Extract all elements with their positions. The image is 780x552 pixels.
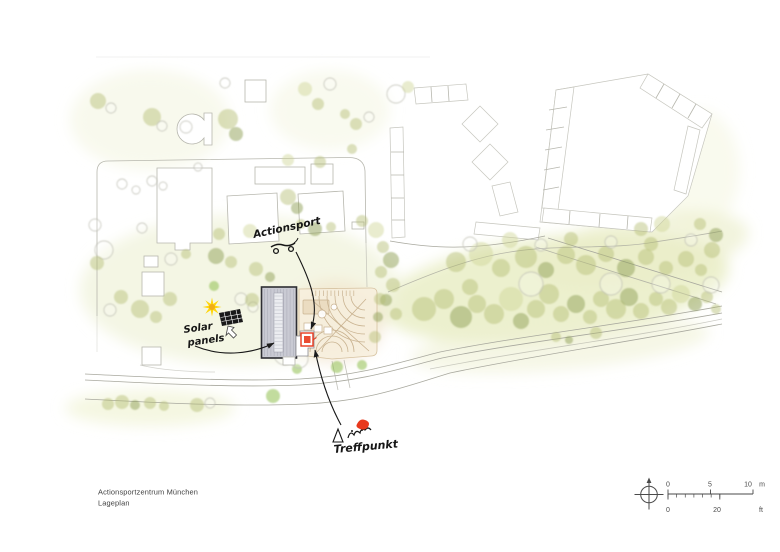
tree	[434, 289, 454, 309]
tree	[688, 297, 702, 311]
annotation-treffpunkt: Treffpunkt	[333, 437, 399, 456]
tree	[280, 189, 296, 205]
tree	[90, 256, 104, 270]
tree	[463, 237, 477, 251]
north-arrow-icon	[635, 478, 664, 510]
tree	[695, 264, 707, 276]
tree	[654, 216, 670, 232]
tree	[564, 232, 578, 246]
tree	[117, 179, 127, 189]
tree	[551, 332, 561, 342]
tree	[565, 336, 573, 344]
title-block: Actionsportzentrum München Lageplan	[98, 488, 198, 508]
tree	[484, 304, 504, 324]
tree	[659, 261, 673, 275]
tree	[163, 292, 177, 306]
scale-ft-unit: ft	[759, 507, 763, 514]
tree	[375, 266, 387, 278]
scale-m-5: 5	[708, 482, 712, 489]
tree	[90, 93, 106, 109]
tree	[557, 246, 575, 264]
building-outline	[144, 256, 158, 267]
tree	[620, 288, 638, 306]
tree	[538, 262, 554, 278]
tree	[356, 215, 368, 227]
tree	[711, 304, 721, 314]
tree	[324, 78, 336, 90]
tree	[249, 262, 263, 276]
tree	[685, 234, 697, 246]
urban-block-west	[390, 84, 540, 240]
tree	[386, 278, 400, 292]
tree	[515, 246, 537, 268]
tree	[144, 397, 156, 409]
tree	[357, 360, 367, 370]
tree	[131, 300, 149, 318]
tree	[576, 255, 596, 275]
tree	[703, 277, 719, 293]
tree	[225, 256, 237, 268]
tree	[513, 313, 529, 329]
tree	[147, 176, 157, 186]
skylight-strip	[274, 293, 283, 352]
tree	[347, 144, 357, 154]
tree	[104, 304, 116, 316]
tree	[213, 228, 225, 240]
tree	[704, 242, 720, 258]
scale-m-unit: m	[759, 482, 765, 489]
tree	[638, 249, 654, 265]
building-outline	[142, 347, 161, 365]
tree	[165, 253, 177, 265]
tree	[652, 275, 670, 293]
tree	[266, 389, 280, 403]
tree	[412, 297, 436, 321]
building-outline	[245, 80, 266, 102]
tree	[208, 248, 224, 264]
tree	[137, 223, 147, 233]
tree	[462, 279, 478, 295]
tree	[694, 218, 706, 230]
tree	[502, 232, 518, 248]
tree	[383, 252, 399, 268]
tree	[181, 249, 191, 259]
tree	[265, 272, 275, 282]
scale-bar: 0 5 10 m 0 20 ft	[666, 482, 765, 515]
tree	[291, 202, 303, 214]
tree	[312, 98, 324, 110]
tree	[678, 251, 694, 267]
tree	[633, 303, 649, 319]
tree	[218, 109, 238, 129]
tree	[590, 327, 602, 339]
tree	[150, 311, 162, 323]
project-title: Actionsportzentrum München	[98, 488, 198, 497]
tree	[373, 312, 383, 322]
site-plan-drawing: Actionsport Solar panels Treffpunkt Ac	[0, 0, 780, 552]
tree	[282, 154, 294, 166]
tree	[132, 186, 140, 194]
tree	[369, 331, 381, 343]
tree	[553, 306, 569, 322]
tree	[402, 81, 414, 93]
tree	[245, 293, 259, 307]
tree	[446, 252, 466, 272]
tree	[331, 361, 343, 373]
tree	[298, 82, 312, 96]
tree	[377, 241, 389, 253]
tree	[450, 306, 472, 328]
tree	[180, 121, 192, 133]
tree	[374, 293, 386, 305]
tree	[390, 308, 402, 320]
tree	[519, 272, 543, 296]
tree	[672, 285, 690, 303]
scale-m-0: 0	[666, 482, 670, 489]
building-outline	[142, 272, 164, 296]
tree	[492, 259, 510, 277]
tree	[364, 112, 374, 122]
tree	[115, 395, 129, 409]
building-outline	[255, 167, 305, 184]
tree	[583, 310, 597, 324]
tree	[567, 295, 585, 313]
tree	[468, 295, 486, 313]
tree	[89, 219, 101, 231]
building-outline	[157, 168, 212, 250]
tree	[209, 281, 219, 291]
scale-m-10: 10	[744, 482, 752, 489]
tree	[644, 237, 658, 251]
tree	[368, 222, 384, 238]
tree	[661, 299, 677, 315]
scale-ft-0: 0	[666, 507, 670, 514]
tree	[340, 109, 350, 119]
tree	[314, 156, 326, 168]
tree	[709, 228, 723, 242]
tree	[157, 121, 167, 131]
tree	[102, 398, 114, 410]
tree	[326, 222, 336, 232]
tree	[159, 401, 169, 411]
tree	[190, 398, 204, 412]
tree	[114, 290, 128, 304]
tree	[205, 398, 215, 408]
tree	[535, 239, 547, 251]
tree	[499, 287, 523, 311]
tree	[194, 163, 202, 171]
tree	[106, 103, 116, 113]
tree	[220, 78, 230, 88]
drawing-title: Lageplan	[98, 499, 130, 508]
tree	[159, 182, 167, 190]
scale-ft-20: 20	[713, 507, 721, 514]
sun-sketch-icon	[203, 298, 222, 317]
tree	[634, 222, 648, 236]
tree	[617, 259, 635, 277]
tree	[130, 400, 140, 410]
tree	[527, 300, 545, 318]
site-plan-sheet: Actionsport Solar panels Treffpunkt Ac	[0, 0, 780, 552]
tree	[649, 292, 663, 306]
tree	[350, 118, 362, 130]
tree	[605, 236, 617, 248]
tree	[229, 127, 243, 141]
tree	[600, 273, 622, 295]
tree	[598, 246, 614, 262]
